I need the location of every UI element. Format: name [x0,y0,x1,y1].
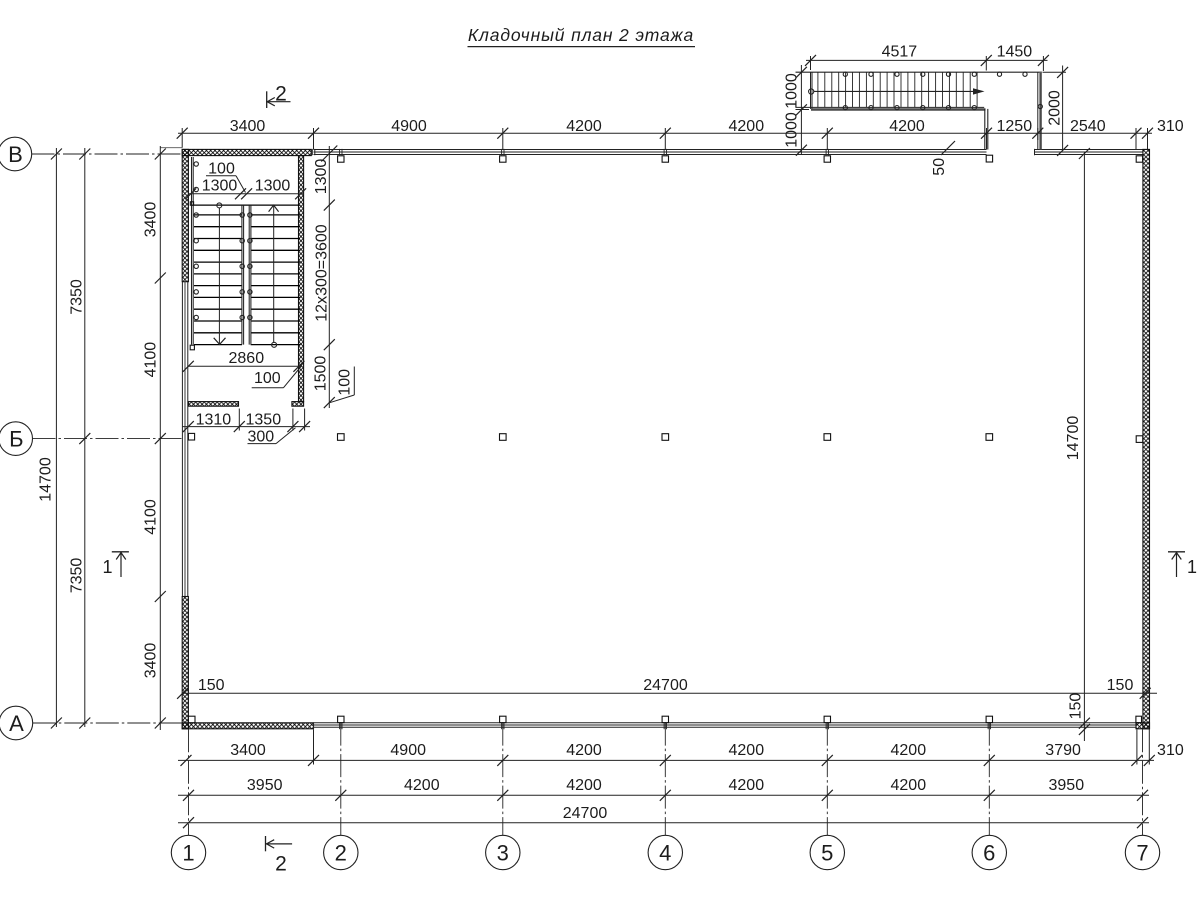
svg-text:1: 1 [102,557,112,577]
svg-text:150: 150 [1107,677,1134,694]
svg-text:2000: 2000 [1047,90,1064,126]
svg-text:4: 4 [659,841,671,866]
svg-text:100: 100 [337,369,354,396]
svg-text:2: 2 [275,853,287,876]
svg-text:12x300=3600: 12x300=3600 [313,224,330,322]
svg-text:4200: 4200 [891,742,927,759]
svg-text:1500: 1500 [313,356,330,392]
svg-text:5: 5 [821,841,833,866]
svg-text:300: 300 [247,428,274,445]
svg-text:7350: 7350 [69,558,86,594]
svg-text:24700: 24700 [563,805,608,822]
svg-text:4517: 4517 [882,44,918,61]
svg-text:1000: 1000 [784,73,801,109]
svg-text:4200: 4200 [729,742,765,759]
svg-text:3950: 3950 [1049,777,1085,794]
svg-text:4200: 4200 [891,777,927,794]
svg-text:4200: 4200 [729,118,765,135]
svg-text:2: 2 [275,83,287,106]
svg-text:3950: 3950 [247,777,283,794]
svg-text:3400: 3400 [230,118,266,135]
svg-text:150: 150 [1068,693,1085,720]
svg-text:14700: 14700 [1065,416,1082,461]
svg-text:Б: Б [9,427,23,452]
svg-text:4200: 4200 [729,777,765,794]
svg-text:4100: 4100 [143,342,160,378]
svg-text:6: 6 [983,841,995,866]
svg-text:310: 310 [1157,118,1184,135]
svg-text:3790: 3790 [1045,742,1081,759]
svg-text:4900: 4900 [390,742,426,759]
svg-text:3: 3 [497,841,509,866]
svg-text:В: В [8,142,23,167]
svg-text:4200: 4200 [566,742,602,759]
svg-text:1: 1 [1187,557,1197,577]
svg-text:3400: 3400 [230,742,266,759]
svg-text:1310: 1310 [196,411,232,428]
svg-text:1300: 1300 [313,159,330,195]
svg-text:1000: 1000 [784,112,801,148]
svg-text:2: 2 [335,841,347,866]
svg-text:50: 50 [931,158,948,176]
svg-text:24700: 24700 [643,677,688,694]
svg-text:4200: 4200 [889,118,925,135]
svg-text:310: 310 [1157,742,1184,759]
svg-text:4900: 4900 [391,118,427,135]
svg-text:4200: 4200 [404,777,440,794]
svg-text:1: 1 [182,841,194,866]
svg-text:100: 100 [254,370,281,387]
svg-text:1300: 1300 [202,177,238,194]
svg-text:150: 150 [198,677,225,694]
svg-text:2540: 2540 [1070,118,1106,135]
svg-text:1350: 1350 [246,411,282,428]
svg-text:А: А [9,711,24,736]
svg-text:1300: 1300 [255,177,291,194]
svg-text:2860: 2860 [229,350,265,367]
svg-text:100: 100 [208,161,235,178]
svg-text:7: 7 [1136,841,1148,866]
svg-text:3400: 3400 [143,643,160,679]
svg-text:3400: 3400 [143,202,160,238]
svg-text:4200: 4200 [566,118,602,135]
svg-text:1450: 1450 [997,44,1033,61]
svg-text:4200: 4200 [566,777,602,794]
svg-text:Кладочный план 2 этажа: Кладочный план 2 этажа [468,25,694,45]
svg-text:7350: 7350 [69,279,86,315]
svg-text:14700: 14700 [37,457,54,502]
svg-text:1250: 1250 [997,118,1033,135]
svg-text:4100: 4100 [143,499,160,535]
